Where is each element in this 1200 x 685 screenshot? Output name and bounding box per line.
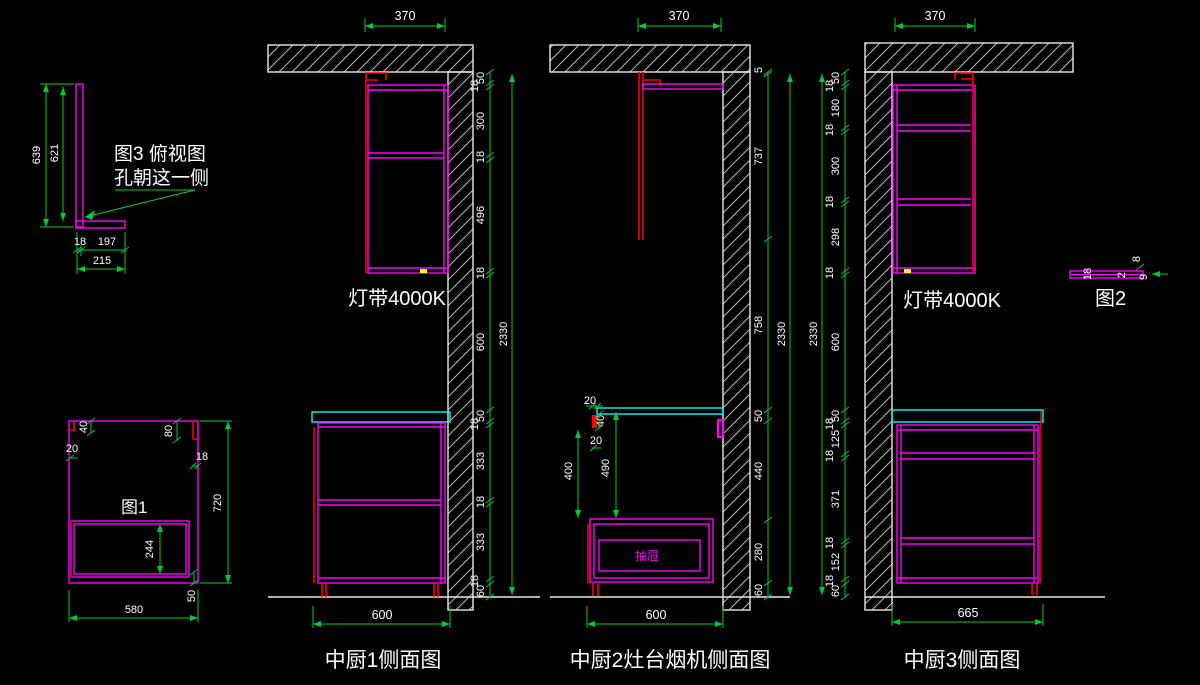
leader-line	[85, 190, 195, 217]
dim-label-80: 80	[163, 425, 175, 437]
dim-label-370: 370	[395, 9, 416, 23]
dim-label: 5	[753, 67, 765, 73]
leader-arrowhead-icon	[85, 210, 95, 220]
dim-label-18: 18	[1082, 268, 1094, 280]
dim-label: 600	[830, 333, 842, 351]
dim-label: 737	[753, 147, 765, 165]
dim-label-50: 50	[186, 590, 198, 602]
cad-drawing-canvas: 639 621 图3 俯视图 孔朝这一侧 18 197 215 图1 40 20…	[0, 0, 1200, 685]
detail-fig1-panel: 图1 40 20 80 18 244 720 580 50	[66, 418, 232, 622]
dim-label-20-top: 20	[584, 395, 596, 407]
dim-label: 18	[475, 496, 487, 508]
dim-label: 300	[475, 112, 487, 130]
dim-label-621: 621	[49, 144, 61, 162]
dim-label: 18	[469, 418, 481, 430]
dim-label: 18	[824, 418, 836, 430]
dim-label: 300	[830, 157, 842, 175]
dim-label: 18	[824, 267, 836, 279]
countertop	[892, 410, 1043, 422]
dim-label-639: 639	[31, 146, 43, 164]
dim-label-18: 18	[74, 236, 86, 248]
light-strip-mark	[904, 269, 911, 273]
base-cabinet-outline	[318, 423, 445, 583]
wall-cabinet-panels	[368, 85, 448, 273]
dim-label-720: 720	[212, 494, 224, 512]
view-zhongchu3: 370 灯带4000K 50 18 180 18 300 18 298 18 6…	[808, 9, 1105, 672]
dim-label-18: 18	[196, 451, 208, 463]
base-door-red-and-leg	[1032, 427, 1040, 595]
wall-cabinet-outline	[893, 85, 975, 273]
dim-label-600: 600	[646, 608, 667, 622]
cabinet-door-red	[366, 73, 386, 273]
dim-label-400: 400	[563, 462, 575, 480]
cabinet-door-red	[955, 73, 973, 273]
dim-label: 18	[824, 196, 836, 208]
wall-hatch	[448, 72, 473, 610]
ceiling-hatch	[550, 45, 750, 72]
drawer-label: 抽屉	[635, 549, 659, 563]
detail-fig2-shelf-section: 18 2 8 9 图2	[1070, 256, 1168, 310]
dim-label-665: 665	[958, 606, 979, 620]
dim-label: 60	[753, 584, 765, 596]
hood-duct-red	[639, 72, 660, 240]
dim-label-overall: 2330	[776, 322, 788, 346]
dim-label: 18	[469, 80, 481, 92]
wall-cabinet-outline	[368, 85, 448, 273]
base-cabinet-panels	[318, 423, 445, 583]
dim-label-370: 370	[925, 9, 946, 23]
dim-label-197: 197	[98, 236, 116, 248]
fig1-drawer-outline	[71, 521, 189, 577]
dim-ticks-20	[66, 455, 78, 461]
dim-label-580: 580	[125, 604, 143, 616]
fig1-notch-top-right	[193, 421, 198, 439]
dim-label: 60	[830, 585, 842, 597]
dim-label: 60	[475, 585, 487, 597]
cad-drawing: 639 621 图3 俯视图 孔朝这一侧 18 197 215 图1 40 20…	[0, 0, 1200, 685]
light-strip-mark	[420, 269, 427, 273]
wall-cleat	[718, 420, 723, 437]
dim-label: 496	[475, 206, 487, 224]
fig3-subtitle: 孔朝这一侧	[114, 167, 209, 189]
dim-label: 18	[475, 267, 487, 279]
fig3-vertical-panel	[76, 84, 83, 227]
dim-label: 18	[475, 151, 487, 163]
fig1-name: 图1	[121, 498, 147, 517]
dim-label: 333	[475, 533, 487, 551]
dim-label: 125	[830, 430, 842, 448]
dim-label-370: 370	[669, 9, 690, 23]
dim-label: 50	[753, 410, 765, 422]
wall-cabinet-panels	[893, 85, 975, 273]
fig3-title: 图3 俯视图	[114, 143, 206, 165]
base-cabinet-panels	[897, 425, 1038, 583]
wall-hatch	[723, 72, 750, 610]
dim-label-2: 2	[1116, 272, 1128, 278]
fig2-name: 图2	[1095, 288, 1126, 310]
dim-label-40: 40	[595, 415, 607, 427]
dim-tick-8	[1136, 264, 1144, 270]
dim-label: 18	[824, 80, 836, 92]
dim-label: 600	[475, 333, 487, 351]
fig1-drawer-inner	[74, 524, 186, 574]
dim-label: 298	[830, 228, 842, 246]
dim-label-600: 600	[372, 608, 393, 622]
dim-label: 180	[830, 99, 842, 117]
dim-label-215: 215	[93, 255, 111, 267]
dim-label: 18	[824, 537, 836, 549]
dim-label-9: 9	[1138, 274, 1150, 280]
ceiling-hatch	[268, 45, 473, 72]
light-label: 灯带4000K	[348, 287, 446, 310]
base-cabinet-outline	[897, 425, 1038, 583]
dim-label: 18	[824, 450, 836, 462]
dim-label: 280	[753, 543, 765, 561]
dim-label: 18	[824, 124, 836, 136]
ceiling-hatch	[865, 43, 1073, 72]
view1-title: 中厨1侧面图	[325, 649, 442, 672]
view3-title: 中厨3侧面图	[904, 649, 1021, 672]
dim-label-244: 244	[144, 540, 156, 558]
view-zhongchu2: 370 20 40 20 400 490 抽屉 5 737 758 50	[550, 9, 790, 672]
fig1-notch-top-left	[69, 421, 74, 430]
dim-chain-labels: 50 18 180 18 300 18 298 18 600 50 18 125…	[824, 72, 842, 597]
light-label: 灯带4000K	[903, 289, 1001, 312]
view2-title: 中厨2灶台烟机侧面图	[570, 649, 771, 672]
dim-label: 440	[753, 462, 765, 480]
detail-fig3-top-view: 639 621 图3 俯视图 孔朝这一侧 18 197 215	[31, 84, 209, 274]
dim-label: 333	[475, 452, 487, 470]
dim-label: 152	[830, 553, 842, 571]
countertop	[312, 412, 450, 422]
cabinet-legs	[322, 583, 438, 597]
dim-ticks-18	[190, 463, 201, 469]
dim-chain-labels: 5 737 758 50 440 280 60	[753, 67, 765, 596]
dim-label-8: 8	[1131, 256, 1143, 262]
dim-label-490: 490	[600, 459, 612, 477]
dim-label-overall: 2330	[808, 322, 820, 346]
view-zhongchu1: 370 灯带4000K 50 18 300 18 496 18 600 50 1…	[268, 9, 540, 672]
wall-hatch	[865, 72, 892, 610]
hood-top-panel	[643, 84, 723, 89]
dim-label-overall: 2330	[498, 322, 510, 346]
dim-label: 371	[830, 490, 842, 508]
dim-label: 758	[753, 316, 765, 334]
dim-label-20: 20	[66, 443, 78, 455]
